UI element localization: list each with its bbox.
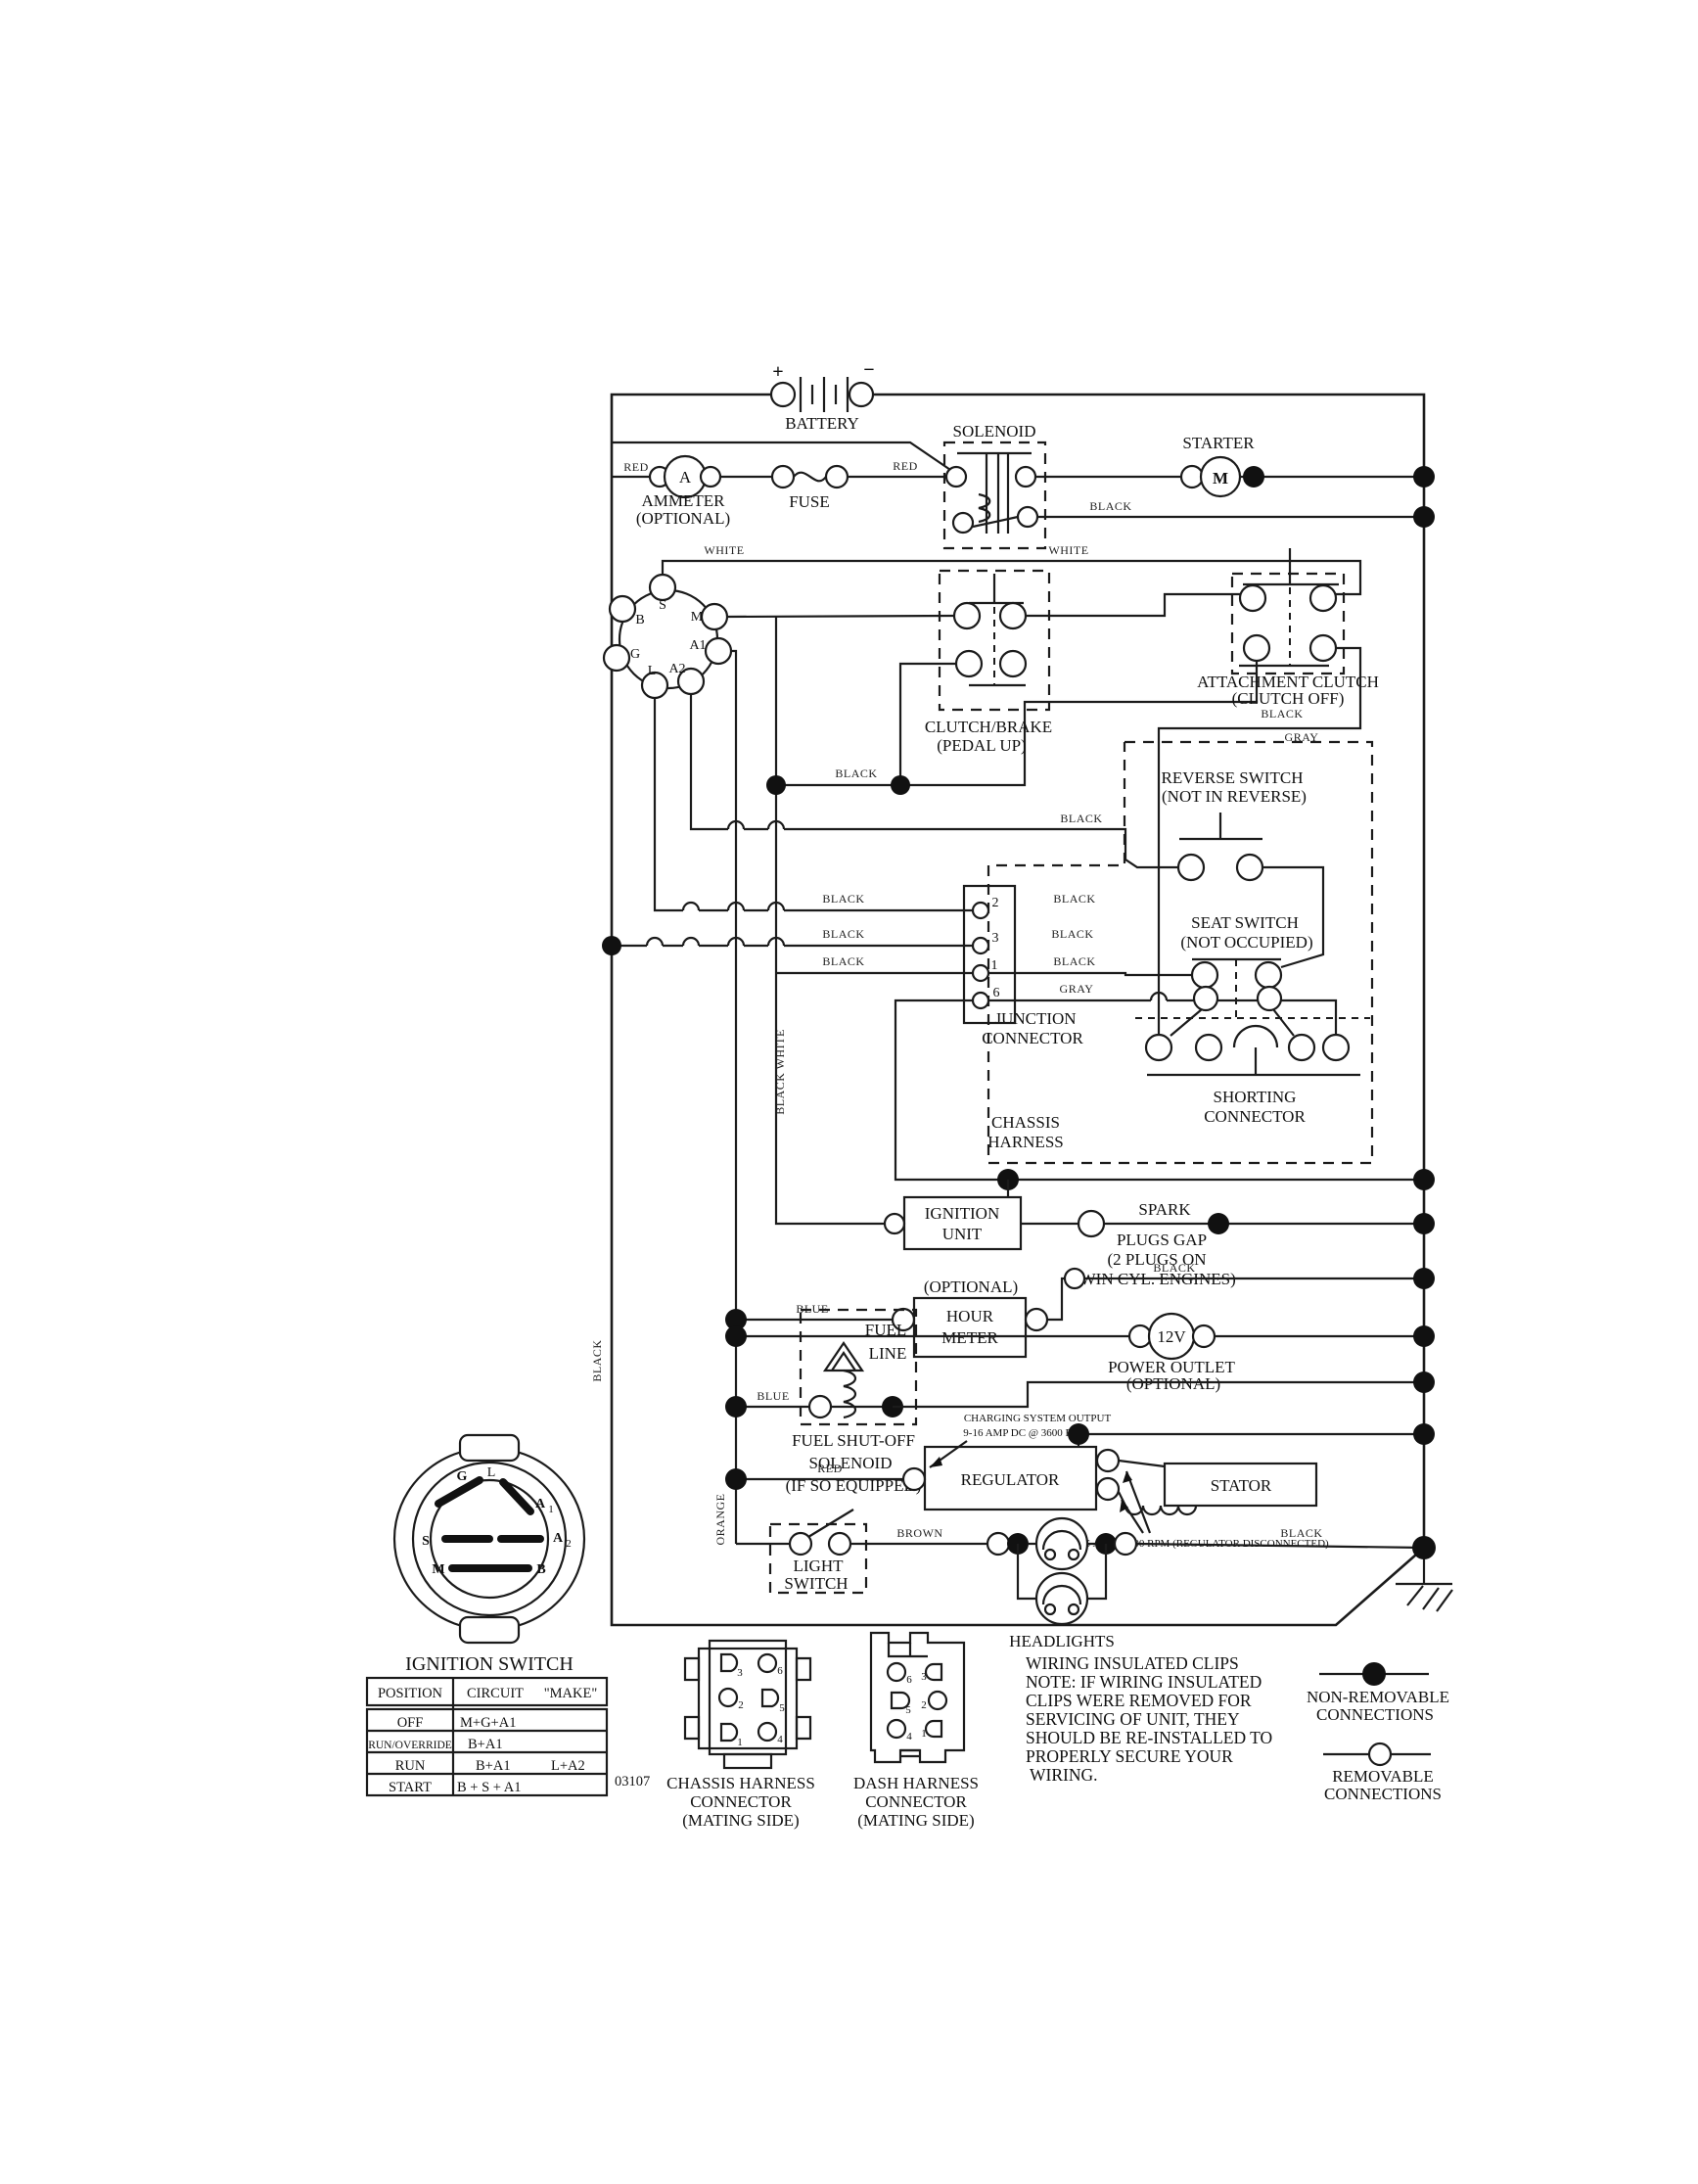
table-row2-position: RUN/OVERRIDE: [368, 1740, 452, 1751]
ignition-switch-title: IGNITION SWITCH: [405, 1653, 574, 1675]
table-row1-position: OFF: [397, 1715, 424, 1731]
fuel-dot-left: [725, 1396, 747, 1417]
ignition-switch-table: POSITION CIRCUIT "MAKE" OFF M+G+A1 RUN/O…: [367, 1678, 650, 1795]
ammeter-fuse-row: RED A AMMETER (OPTIONAL) FUSE RED: [612, 442, 956, 528]
attachment-terminal-br: [1310, 635, 1336, 661]
chassis-pin-o2: [719, 1689, 737, 1706]
junction-pin-3: [973, 938, 988, 953]
ammeter-optional-label: (OPTIONAL): [636, 509, 730, 528]
nonremovable-icon: [1362, 1662, 1386, 1686]
bus-dot-5: [1413, 1268, 1435, 1289]
face-b-label: B: [536, 1562, 545, 1577]
seat-sub-label: (NOT OCCUPIED): [1180, 933, 1312, 952]
white-wire-label-1: WHITE: [704, 543, 744, 557]
solenoid-label: SOLENOID: [953, 422, 1036, 441]
cluster-l-label: L: [648, 664, 657, 678]
solenoid-lower-left-terminal: [953, 513, 973, 533]
lighting-circuit: ORANGE LIGHT SWITCH BROWN HEADLIGHTS BLA…: [590, 1339, 1436, 1650]
l-row-wire: [655, 903, 973, 910]
l-row-hops: [683, 903, 784, 910]
bulb2-pin-b: [1069, 1604, 1078, 1614]
cluster-terminal-m: [702, 604, 727, 629]
junction-connector-label2: CONNECTOR: [982, 1029, 1083, 1047]
ignition-switch-cluster: S B M G A1 A2 L: [604, 575, 731, 698]
stator-wire-top: [1119, 1461, 1165, 1466]
dash-pin-o2: [929, 1692, 946, 1709]
bus-dot-6: [1413, 1325, 1435, 1347]
black-label-right2: BLACK: [1051, 927, 1093, 941]
shorting-pin-4: [1323, 1035, 1349, 1060]
chassis-conn-tabs: [685, 1658, 810, 1739]
reverse-label: REVERSE SWITCH: [1162, 768, 1304, 787]
solenoid-left-terminal: [946, 467, 966, 487]
regulator-top-dot: [1068, 1423, 1089, 1445]
chassis-pin4-label: 4: [777, 1734, 783, 1745]
clutch-brake-actuator-icon: [969, 574, 1024, 603]
chassis-pin5-label: 5: [779, 1702, 785, 1714]
chassis-pin-o6: [758, 1654, 776, 1672]
battery: + − BATTERY: [771, 359, 875, 433]
battery-cells-icon: [801, 377, 848, 412]
charging-arrowhead: [930, 1457, 942, 1467]
junction-pin-2: [973, 903, 988, 918]
bulb1-pin-a: [1045, 1550, 1055, 1559]
table-header-circuit: CIRCUIT: [467, 1686, 524, 1701]
headlight-connector-left: [987, 1533, 1009, 1555]
dash-pin6-label: 6: [906, 1674, 912, 1686]
note-line-4: SERVICING OF UNIT, THEY: [1026, 1709, 1240, 1729]
table-row1-circuit: M+G+A1: [460, 1715, 516, 1731]
table-row2-circuit: B+A1: [468, 1737, 503, 1752]
shorting-diagonals: [1170, 1009, 1294, 1036]
clutch-brake-terminal-bl: [956, 651, 982, 676]
attachment-terminal-bl: [1244, 635, 1269, 661]
junction-pin1-label: 1: [991, 958, 998, 973]
attachment-terminal-tr: [1310, 585, 1336, 611]
clutch-brake-terminal-tl: [954, 603, 980, 628]
starter: M STARTER BLACK: [1035, 434, 1435, 528]
white-wire-label-2: WHITE: [1048, 543, 1088, 557]
face-a2-sub: 2: [566, 1538, 572, 1550]
black-label-hour: BLACK: [1153, 1261, 1195, 1275]
bus-dot-2: [1413, 506, 1435, 528]
black-label-attachment: BLACK: [1261, 707, 1303, 720]
black-label-left2: BLACK: [822, 927, 864, 941]
bus-dot-7: [1413, 1371, 1435, 1393]
removable-icon: [1369, 1743, 1391, 1765]
legend-removable-label2: CONNECTIONS: [1324, 1785, 1442, 1803]
solenoid-lower-right-terminal: [1018, 507, 1037, 527]
table-row3-circuit: B+A1: [476, 1758, 511, 1774]
cluster-terminal-b: [610, 596, 635, 622]
legend-nonremovable-label2: CONNECTIONS: [1316, 1705, 1434, 1724]
face-tab-top: [460, 1435, 519, 1461]
dash-harness-connector: 6 3 5 2 4 1 DASH HARNESS CONNECTOR (MATI…: [853, 1633, 979, 1830]
junction-pin3-label: 3: [992, 931, 999, 946]
clutch-to-attachment-wire: [1026, 594, 1240, 616]
wiring-diagram-page: + − BATTERY RED A AMMETER (OPTIONAL) FUS…: [0, 0, 1698, 2184]
ignition-switch-face: G L A 1 A 2 S M B IGNITION SWITCH: [394, 1435, 584, 1675]
fuse-label: FUSE: [789, 492, 830, 511]
bus-dot-1: [1413, 466, 1435, 488]
dash-pin-o6: [888, 1663, 905, 1681]
spark-junction-dot: [1208, 1213, 1229, 1234]
table-row4-circuit: B + S + A1: [457, 1780, 522, 1795]
battery-minus: −: [863, 359, 874, 381]
hour-meter-label2: METER: [941, 1328, 998, 1347]
black-label-right3: BLACK: [1053, 954, 1095, 968]
black-wire-label-starter: BLACK: [1089, 499, 1131, 513]
junction-pin6-label: 6: [993, 986, 1000, 1000]
legend: NON-REMOVABLE CONNECTIONS REMOVABLE CONN…: [1307, 1662, 1449, 1803]
bulb2-pin-a: [1045, 1604, 1055, 1614]
face-a2-label: A: [553, 1531, 564, 1546]
solenoid-right-terminal: [1016, 467, 1035, 487]
junction-dot-802a: [766, 775, 786, 795]
magneto-drop-wire: [776, 617, 885, 1224]
note-line-5: SHOULD BE RE-INSTALLED TO: [1026, 1728, 1272, 1747]
junction-pin-6: [973, 993, 988, 1008]
chassis-pin2-label: 2: [738, 1699, 744, 1711]
outlet-12v-label: 12V: [1157, 1327, 1186, 1346]
light-switch-label2: SWITCH: [784, 1574, 848, 1593]
seat-label: SEAT SWITCH: [1191, 913, 1299, 932]
light-switch-terminal-right: [829, 1533, 850, 1555]
chassis-harness-label2: HARNESS: [987, 1133, 1063, 1151]
chassis-conn-label1: CHASSIS HARNESS: [666, 1774, 815, 1792]
chassis-conn-label3: (MATING SIDE): [682, 1811, 799, 1830]
chassis-harness-connector: 3 6 2 5 1 4 CHASSIS HARNESS CONNECTOR (M…: [666, 1641, 815, 1830]
clutch-brake-switch: CLUTCH/BRAKE (PEDAL UP): [925, 571, 1240, 755]
dash-conn-label1: DASH HARNESS: [853, 1774, 979, 1792]
note-line-6: PROPERLY SECURE YOUR: [1026, 1746, 1233, 1766]
cluster-s-label: S: [659, 598, 666, 613]
bulb1-pin-b: [1069, 1550, 1078, 1559]
a2-l-drop-wires: [655, 694, 691, 903]
cluster-g-label: G: [630, 647, 640, 662]
junction-dot-802b: [891, 775, 910, 795]
note-line-2: NOTE: IF WIRING INSULATED: [1026, 1672, 1262, 1692]
hour-meter-optional: (OPTIONAL): [924, 1278, 1018, 1296]
schematic-canvas: + − BATTERY RED A AMMETER (OPTIONAL) FUS…: [0, 0, 1698, 2184]
starter-m: M: [1213, 469, 1228, 488]
hour-out-connector: [1065, 1269, 1084, 1288]
attachment-terminal-tl: [1240, 585, 1265, 611]
bus-dot-3: [1413, 1169, 1435, 1190]
face-tab-bottom: [460, 1617, 519, 1643]
battery-label: BATTERY: [785, 414, 859, 433]
hour-meter-right-terminal: [1026, 1309, 1047, 1330]
dash-conn-label2: CONNECTOR: [865, 1792, 967, 1811]
power-outlet-optional: (OPTIONAL): [1126, 1374, 1220, 1393]
black-label-headlights: BLACK: [1280, 1526, 1322, 1540]
regulator-dot: [725, 1468, 747, 1490]
starter-junction-dot: [1243, 466, 1264, 488]
fuel-terminal: [809, 1396, 831, 1417]
brown-label: BROWN: [896, 1526, 942, 1540]
spark-plug-connector: [1078, 1211, 1104, 1236]
outlet-right-connector: [1193, 1325, 1215, 1347]
solenoid: SOLENOID: [944, 422, 1045, 548]
blue-label-2: BLUE: [757, 1389, 789, 1403]
fuel-line-label: LINE: [869, 1344, 907, 1363]
outlet-row-dot: [725, 1325, 747, 1347]
clutch-brake-terminal-br: [1000, 651, 1026, 676]
headlight-connector-right: [1115, 1533, 1136, 1555]
dash-pin-d1: [926, 1721, 941, 1737]
red-wire-label-2: RED: [893, 459, 918, 473]
fuel-shutoff-label1: FUEL SHUT-OFF: [792, 1431, 915, 1450]
face-a1-sub: 1: [548, 1504, 554, 1515]
starter-left-connector: [1181, 466, 1203, 488]
gray-label-2: GRAY: [1060, 982, 1094, 996]
spark-label2: PLUGS GAP: [1117, 1231, 1207, 1249]
black-label-row847: BLACK: [1060, 812, 1102, 825]
stator-terminal-bottom: [1097, 1478, 1119, 1500]
seat-terminal-right: [1256, 962, 1281, 988]
black-label-left3: BLACK: [822, 954, 864, 968]
starter-label: STARTER: [1182, 434, 1255, 452]
face-g-label: G: [457, 1469, 468, 1484]
reverse-terminal-left: [1178, 855, 1204, 880]
dash-pin2-label: 2: [921, 1699, 927, 1711]
chassis-pin1-label: 1: [737, 1737, 743, 1748]
hour-meter-label1: HOUR: [946, 1307, 994, 1325]
solenoid-coil-icon: [979, 494, 989, 522]
shorting-upper-right: [1258, 987, 1281, 1010]
chassis-pin-d3: [721, 1654, 737, 1671]
chassis-pin-d1: [721, 1724, 737, 1741]
black-label-row802: BLACK: [835, 767, 877, 780]
dash-pin4-label: 4: [906, 1731, 912, 1743]
ammeter-right-connector: [701, 467, 720, 487]
cluster-terminal-s: [650, 575, 675, 600]
cluster-terminal-g: [604, 645, 629, 671]
seat-feed-wire: [988, 973, 1192, 975]
shorting-pin-2: [1196, 1035, 1221, 1060]
volts-arrowheads: [1120, 1471, 1132, 1512]
fuel-label: FUEL: [865, 1321, 907, 1339]
battery-neg-terminal: [849, 383, 873, 406]
dash-conn-body: [871, 1633, 964, 1762]
shorting-upper-left: [1194, 987, 1217, 1010]
reverse-actuator-icon: [1179, 813, 1262, 839]
dash-pin5-label: 5: [905, 1704, 911, 1716]
ammeter-a: A: [679, 468, 692, 487]
black-label-right1: BLACK: [1053, 892, 1095, 906]
clutch-brake-sub-label: (PEDAL UP): [937, 736, 1026, 755]
fuel-coil-icon: [844, 1371, 855, 1417]
ignition-unit-label1: IGNITION: [925, 1204, 999, 1223]
table-row3-make: L+A2: [551, 1758, 585, 1774]
cluster-m-label: M: [691, 610, 704, 625]
attachment-sub-label: (CLUTCH OFF): [1232, 689, 1345, 708]
cluster-terminal-a1: [706, 638, 731, 664]
face-m-label: M: [432, 1562, 444, 1577]
fuse-icon: [794, 473, 826, 482]
chassis-conn-latch: [724, 1754, 771, 1768]
table-header-make: "MAKE": [544, 1686, 598, 1701]
power-outlet: 12V POWER OUTLET (OPTIONAL): [725, 1314, 1435, 1393]
frame-row-hops: [647, 938, 784, 946]
seat-terminal-left: [1192, 962, 1217, 988]
face-l-label: L: [487, 1465, 496, 1480]
battery-pos-terminal: [771, 383, 795, 406]
junction-pin-1: [973, 965, 988, 981]
ground-dot: [1412, 1536, 1436, 1559]
outlet-left-connector: [1129, 1325, 1151, 1347]
hour-meter: BLUE (OPTIONAL) HOUR METER BLACK: [725, 1261, 1435, 1357]
red-label-regulator: RED: [817, 1462, 843, 1475]
cluster-a2-label: A2: [668, 662, 685, 676]
attachment-actuator-icon: [1243, 548, 1339, 584]
cluster-a1-label: A1: [689, 638, 706, 653]
note-line-1: WIRING INSULATED CLIPS: [1026, 1653, 1239, 1673]
face-s-label: S: [422, 1534, 430, 1549]
chassis-pin-d5: [762, 1690, 778, 1706]
diagram-code: 03107: [615, 1774, 650, 1789]
fuel-arrow-icon: [825, 1343, 862, 1371]
junction-pin2-label: 2: [992, 896, 999, 910]
note-line-3: CLIPS WERE REMOVED FOR: [1026, 1691, 1252, 1710]
face-a1-label: A: [535, 1497, 546, 1511]
chassis-pin3-label: 3: [737, 1667, 743, 1679]
cluster-b-label: B: [635, 613, 644, 627]
regulator-terminal: [903, 1468, 925, 1490]
fuse-left-connector: [772, 466, 794, 488]
m-row-wire: [726, 616, 954, 617]
dash-pin-d3: [926, 1664, 941, 1680]
ignition-unit-label2: UNIT: [942, 1225, 983, 1243]
spark-label1: SPARK: [1138, 1200, 1191, 1219]
bus-dot-8: [1413, 1423, 1435, 1445]
table-header-position: POSITION: [378, 1686, 443, 1701]
a2-row-wire: [691, 821, 1178, 867]
ammeter-label: AMMETER: [642, 491, 726, 510]
table-row4-position: START: [389, 1780, 432, 1795]
ignition-unit-terminal: [885, 1214, 904, 1233]
shorting-pin-1: [1146, 1035, 1171, 1060]
note-line-7: WIRING.: [1030, 1765, 1098, 1785]
dash-conn-label3: (MATING SIDE): [857, 1811, 974, 1830]
reverse-terminal-right: [1237, 855, 1262, 880]
stator-label: STATOR: [1211, 1476, 1272, 1495]
chassis-pin-o4: [758, 1723, 776, 1741]
reverse-sub-label: (NOT IN REVERSE): [1162, 787, 1307, 806]
frame-junction-dot: [602, 936, 621, 955]
clutch-brake-terminal-tr: [1000, 603, 1026, 628]
chassis-conn-label2: CONNECTOR: [690, 1792, 792, 1811]
chassis-harness-label1: CHASSIS: [991, 1113, 1060, 1132]
black-white-vert-label: BLACK WHITE: [773, 1029, 787, 1115]
orange-label: ORANGE: [713, 1494, 727, 1546]
regulator-label: REGULATOR: [961, 1470, 1060, 1489]
shorting-label2: CONNECTOR: [1204, 1107, 1306, 1126]
black-vert-label: BLACK: [590, 1339, 604, 1381]
dash-pin-o4: [888, 1720, 905, 1738]
stator-coil-icon: [1119, 1492, 1196, 1514]
battery-plus: +: [772, 361, 783, 383]
stator-terminal-top: [1097, 1450, 1119, 1471]
red-wire-label-1: RED: [623, 460, 649, 474]
light-switch-label1: LIGHT: [794, 1557, 845, 1575]
junction-connector-label1: JUNCTION: [994, 1009, 1076, 1028]
legend-nonremovable-label1: NON-REMOVABLE: [1307, 1688, 1449, 1706]
shorting-label1: SHORTING: [1214, 1088, 1297, 1106]
headlights-label: HEADLIGHTS: [1009, 1632, 1115, 1650]
legend-removable-label1: REMOVABLE: [1332, 1767, 1434, 1786]
wiring-note: WIRING INSULATED CLIPS NOTE: IF WIRING I…: [1026, 1653, 1272, 1785]
bus-dot-4: [1413, 1213, 1435, 1234]
shorting-pin-3: [1289, 1035, 1314, 1060]
chassis-pin6-label: 6: [777, 1665, 783, 1677]
fuse-right-connector: [826, 466, 848, 488]
charging-label1: CHARGING SYSTEM OUTPUT: [964, 1413, 1112, 1424]
clutch-brake-label: CLUTCH/BRAKE: [925, 718, 1052, 736]
table-row3-position: RUN: [395, 1758, 426, 1774]
regulator-bus-wire: [1078, 1434, 1424, 1447]
black-label-left1: BLACK: [822, 892, 864, 906]
